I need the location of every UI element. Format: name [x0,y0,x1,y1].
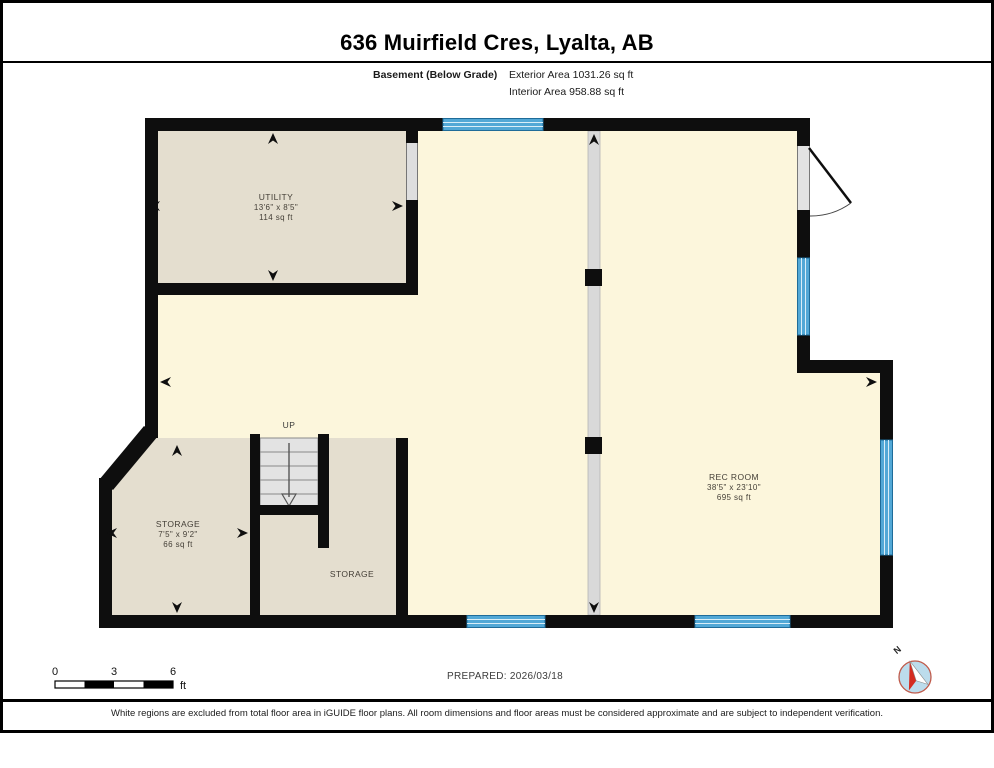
prepared-date-label: PREPARED: 2026/03/18 [390,671,620,682]
room-name: UTILITY [216,192,336,203]
storage-room-label: STORAGE 7'5" x 9'2" 66 sq ft [118,519,238,551]
room-area: 695 sq ft [674,493,794,503]
room-area: 114 sq ft [216,213,336,223]
room-name: STORAGE [118,519,238,530]
disclaimer-text: White regions are excluded from total fl… [10,708,984,719]
staircase [260,438,318,508]
utility-room-label: UTILITY 13'6" x 8'5" 114 sq ft [216,192,336,224]
room-dimensions: 7'5" x 9'2" [118,530,238,540]
room-name: STORAGE [302,569,402,580]
room-dimensions: 13'6" x 8'5" [216,203,336,213]
scale-unit-label: ft [180,680,186,692]
rec-room-label: REC ROOM 38'5" x 23'10" 695 sq ft [674,472,794,504]
scale-tick-3: 3 [107,666,121,678]
scale-bar [55,681,173,688]
room-area: 66 sq ft [118,540,238,550]
window-right-lower [881,440,893,555]
scale-tick-0: 0 [48,666,62,678]
exterior-door [798,146,852,216]
room-name: REC ROOM [674,472,794,483]
window-right-upper [798,258,810,335]
utility-door-opening [407,143,418,200]
room-dimensions: 38'5" x 23'10" [674,483,794,493]
window-bottom-left [467,616,545,628]
footer-divider [3,699,991,702]
window-top [443,119,543,131]
storage2-room-label: STORAGE [302,569,402,580]
floorplan-page: 636 Muirfield Cres, Lyalta, AB Basement … [0,0,994,768]
window-bottom-right [695,616,790,628]
compass-icon [899,658,931,693]
floorplan-drawing [0,0,994,734]
stairs-up-label: UP [269,420,309,430]
scale-tick-6: 6 [166,666,180,678]
